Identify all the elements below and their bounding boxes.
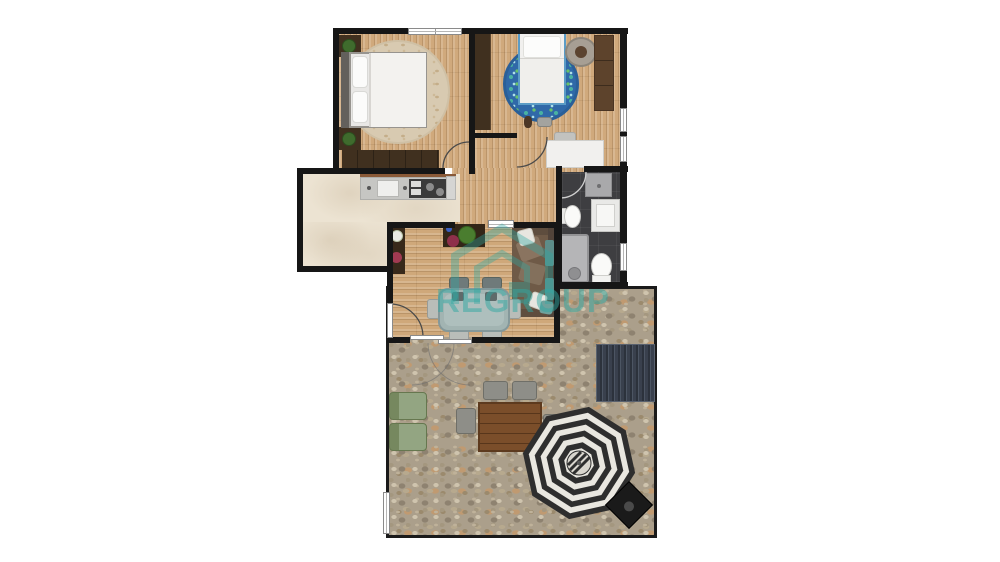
wardrobe (342, 150, 439, 168)
wall-segment (333, 28, 628, 34)
double-bed-headboard (341, 52, 349, 128)
game-controller (537, 117, 552, 127)
wall-segment (469, 28, 475, 174)
grill-lid-handle (622, 499, 636, 513)
entry-door-leaf (387, 303, 393, 338)
kitchen-floor-lower (303, 222, 393, 266)
sink-basin (596, 204, 615, 227)
wall-segment (297, 168, 339, 174)
wall-segment (584, 166, 628, 172)
wall-segment (333, 168, 445, 174)
window (620, 108, 627, 132)
bed-pillow (523, 36, 561, 58)
window-pane-line (623, 109, 624, 131)
solar-panel (596, 344, 655, 402)
kitchen-sink (377, 180, 399, 197)
wall-segment (469, 133, 517, 138)
desk (546, 140, 604, 168)
bed-duvet (369, 53, 426, 127)
outdoor-chair (512, 381, 537, 400)
round-lounge-chair (565, 37, 597, 67)
fridge-module (446, 176, 456, 200)
wall-segment (297, 168, 303, 272)
window-pane-line (409, 31, 461, 32)
bed-pillow (352, 91, 368, 123)
lounge-chair-cushion (575, 46, 587, 58)
window-pane-line (623, 244, 624, 270)
nightstand (337, 127, 361, 150)
wall-segment (387, 222, 455, 228)
bidet-bowl (564, 205, 581, 228)
wall-segment (333, 28, 339, 174)
shower-drain (597, 184, 601, 188)
garden-armchair (389, 392, 427, 420)
teddy-bear (524, 116, 532, 128)
shower-tray (585, 173, 612, 197)
wall-segment (297, 266, 393, 272)
window-pane-line (623, 137, 624, 161)
shower-head (568, 267, 581, 280)
watermark-brand-text: REGROUP (436, 282, 596, 320)
tall-shelf (594, 35, 614, 111)
window (620, 136, 627, 162)
burner (436, 188, 444, 196)
bathtub-with-shower (558, 234, 589, 283)
patio-side-window (383, 492, 390, 534)
outdoor-chair (456, 408, 476, 434)
sliding-glass-door (410, 335, 472, 345)
hallway-floor (452, 168, 556, 228)
counter-knob (367, 186, 371, 190)
window (408, 28, 462, 35)
bed-duvet (520, 58, 564, 103)
wall-segment (387, 222, 393, 304)
sliding-door-panel (438, 339, 472, 344)
outdoor-chair (483, 381, 508, 400)
counter-knob (403, 186, 407, 190)
floor-plan-canvas: REGROUP (0, 0, 1000, 562)
window-pane-line (386, 493, 387, 533)
cooktop (409, 179, 446, 198)
wardrobe (474, 34, 491, 130)
window (620, 243, 627, 271)
vanity-sink (591, 199, 620, 232)
garden-armchair (389, 423, 427, 451)
wall-segment (472, 337, 560, 343)
potted-plant (342, 132, 356, 146)
cooktop-panel (411, 189, 421, 195)
bed-pillow (352, 56, 368, 88)
potted-plant (342, 39, 356, 53)
cooktop-panel (411, 181, 421, 187)
burner (426, 183, 434, 191)
